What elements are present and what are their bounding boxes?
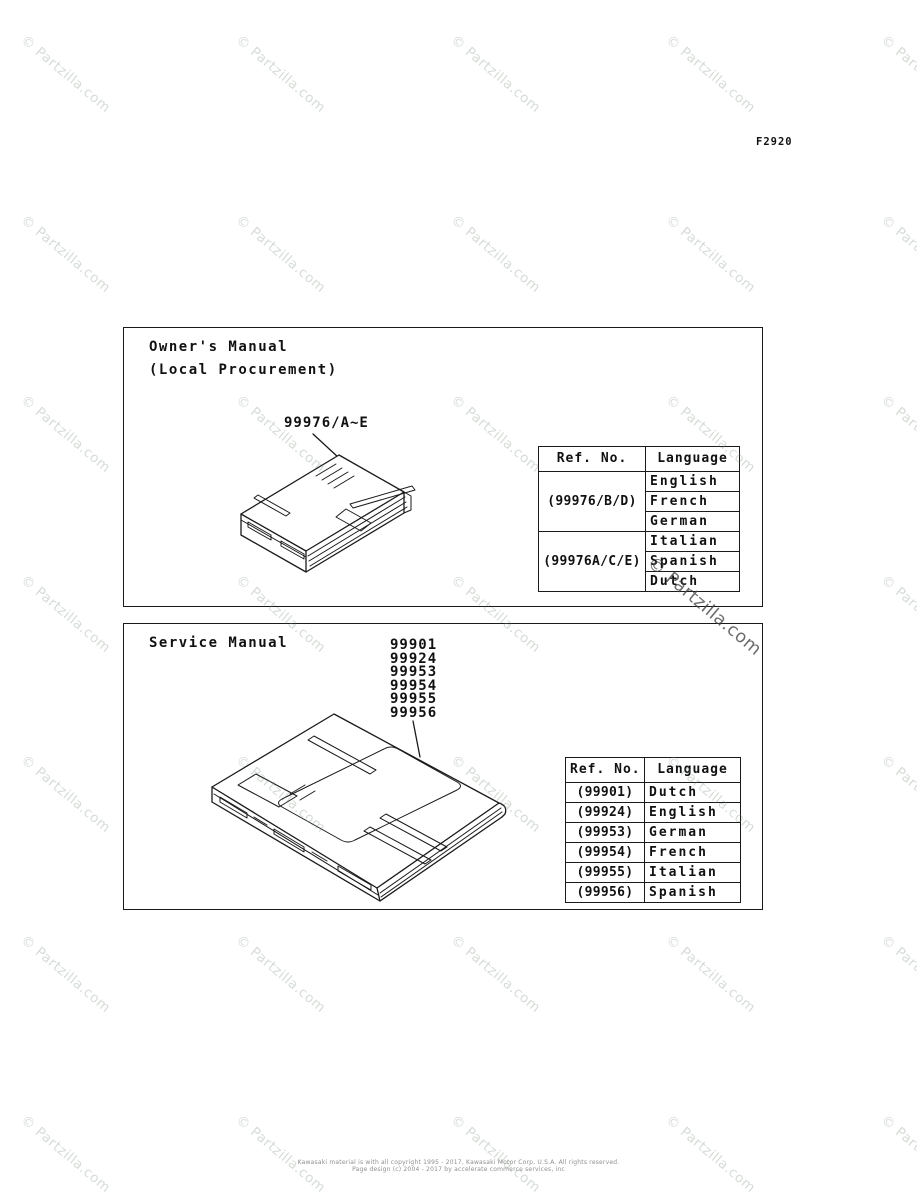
figure-code: F2920	[756, 136, 793, 148]
language-cell: Italian	[645, 863, 741, 883]
table-row: (99924) English	[566, 803, 741, 823]
table-row: (99954) French	[566, 843, 741, 863]
footer-design-line: Page design (c) 2004 - 2017 by accelerat…	[0, 1166, 917, 1173]
watermark: © Partzilla.com	[878, 1112, 917, 1196]
table-row: (99976/B/D) English	[539, 472, 740, 492]
ref-no-cell: (99924)	[566, 803, 645, 823]
owners-manual-language-table: Ref. No. Language (99976/B/D) English Fr…	[538, 446, 740, 592]
leader-line	[413, 721, 420, 757]
language-cell: French	[645, 843, 741, 863]
watermark: © Partzilla.com	[448, 1112, 544, 1196]
watermark: © Partzilla.com	[663, 32, 759, 116]
watermark: © Partzilla.com	[18, 572, 114, 656]
watermark: © Partzilla.com	[18, 932, 114, 1016]
watermark: © Partzilla.com	[878, 932, 917, 1016]
ref-no-cell: (99956)	[566, 883, 645, 903]
watermark: © Partzilla.com	[233, 212, 329, 296]
language-cell: German	[645, 823, 741, 843]
ref-no-cell: (99901)	[566, 783, 645, 803]
parts-diagram-page: F2920 Owner's Manual (Local Procurement)…	[0, 0, 917, 1200]
watermark: © Partzilla.com	[233, 1112, 329, 1196]
watermark: © Partzilla.com	[448, 932, 544, 1016]
ref-no-header: Ref. No.	[566, 758, 645, 783]
watermark: © Partzilla.com	[878, 392, 917, 476]
ref-no-header: Ref. No.	[539, 447, 646, 472]
watermark: © Partzilla.com	[663, 1112, 759, 1196]
watermark: © Partzilla.com	[878, 212, 917, 296]
watermark: © Partzilla.com	[878, 752, 917, 836]
language-cell: English	[646, 472, 740, 492]
language-cell: Dutch	[645, 783, 741, 803]
language-cell: German	[646, 512, 740, 532]
watermark: © Partzilla.com	[18, 752, 114, 836]
watermark: © Partzilla.com	[233, 32, 329, 116]
watermark: © Partzilla.com	[18, 32, 114, 116]
watermark: © Partzilla.com	[448, 32, 544, 116]
ref-no-cell: (99953)	[566, 823, 645, 843]
ref-no-cell: (99976A/C/E)	[539, 532, 646, 592]
watermark: © Partzilla.com	[18, 1112, 114, 1196]
table-row: (99976A/C/E) Italian	[539, 532, 740, 552]
page-footer: Kawasaki material is with all copyright …	[0, 1159, 917, 1173]
watermark: © Partzilla.com	[878, 572, 917, 656]
leader-line	[313, 434, 339, 458]
ref-no-cell: (99955)	[566, 863, 645, 883]
service-manual-language-table: Ref. No. Language (99901) Dutch (99924) …	[565, 757, 741, 903]
watermark: © Partzilla.com	[448, 212, 544, 296]
table-row: (99956) Spanish	[566, 883, 741, 903]
table-row: (99955) Italian	[566, 863, 741, 883]
table-row: (99901) Dutch	[566, 783, 741, 803]
language-cell: French	[646, 492, 740, 512]
watermark: © Partzilla.com	[878, 32, 917, 116]
watermark: © Partzilla.com	[663, 932, 759, 1016]
table-header-row: Ref. No. Language	[539, 447, 740, 472]
language-cell: Dutch	[646, 572, 740, 592]
watermark: © Partzilla.com	[18, 392, 114, 476]
footer-copyright-line: Kawasaki material is with all copyright …	[0, 1159, 917, 1166]
ref-no-cell: (99954)	[566, 843, 645, 863]
table-row: (99953) German	[566, 823, 741, 843]
language-header: Language	[646, 447, 740, 472]
language-cell: Spanish	[646, 552, 740, 572]
watermark: © Partzilla.com	[233, 932, 329, 1016]
ref-no-cell: (99976/B/D)	[539, 472, 646, 532]
language-cell: Italian	[646, 532, 740, 552]
watermark: © Partzilla.com	[663, 212, 759, 296]
language-header: Language	[645, 758, 741, 783]
language-cell: English	[645, 803, 741, 823]
table-header-row: Ref. No. Language	[566, 758, 741, 783]
language-cell: Spanish	[645, 883, 741, 903]
watermark: © Partzilla.com	[18, 212, 114, 296]
